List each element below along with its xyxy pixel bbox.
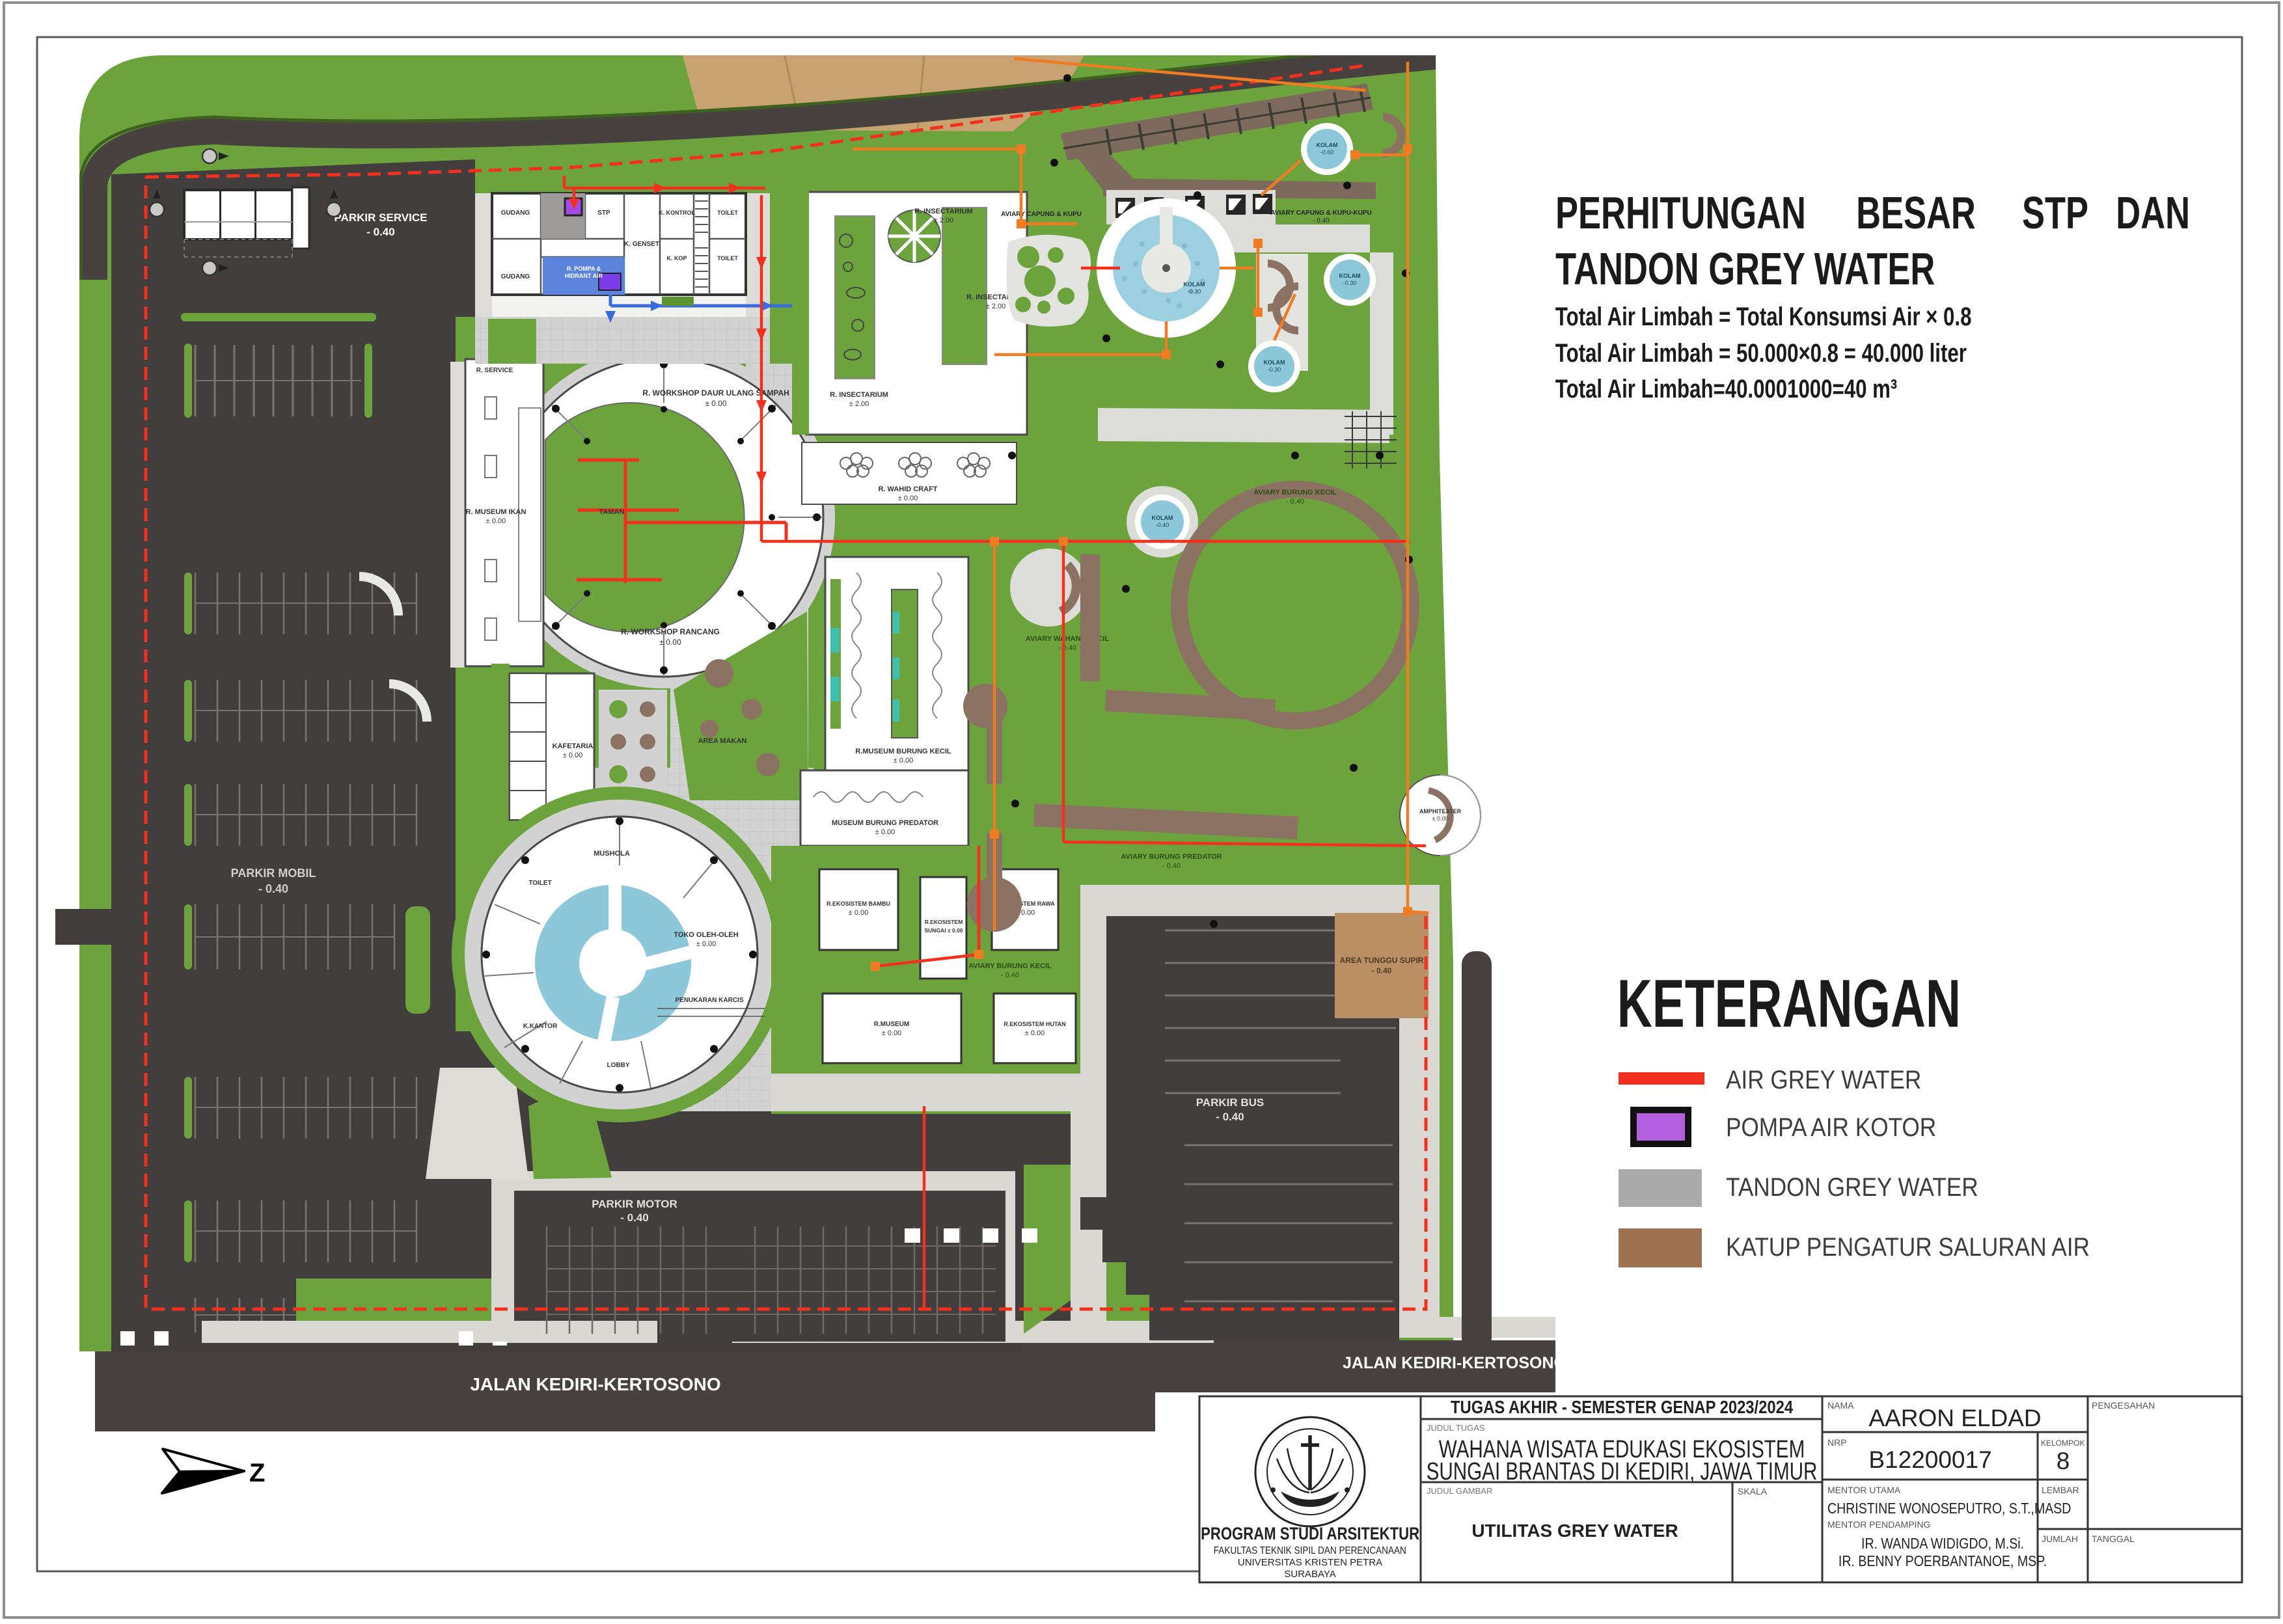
svg-text:AVIARY CAPUNG & KUPU-KUPU: AVIARY CAPUNG & KUPU-KUPU [1270,210,1371,217]
svg-text:R.MUSEUM: R.MUSEUM [874,1021,909,1028]
svg-text:TANDON GREY WATER: TANDON GREY WATER [1726,1172,1978,1202]
svg-text:MENTOR PENDAMPING: MENTOR PENDAMPING [1827,1519,1930,1530]
svg-text:TUGAS AKHIR - SEMESTER GENAP 2: TUGAS AKHIR - SEMESTER GENAP 2023/2024 [1451,1396,1794,1417]
svg-text:SKALA: SKALA [1738,1486,1768,1496]
svg-text:PARKIR BUS: PARKIR BUS [1196,1096,1265,1109]
svg-text:R.MUSEUM BURUNG KECIL: R.MUSEUM BURUNG KECIL [855,748,951,755]
svg-text:AREA TUNGGU SUPIR: AREA TUNGGU SUPIR [1340,956,1424,965]
svg-text:± 0.00: ± 0.00 [659,638,681,647]
svg-text:UNIVERSITAS KRISTEN PETRA: UNIVERSITAS KRISTEN PETRA [1238,1557,1382,1568]
svg-text:NAMA: NAMA [1827,1400,1854,1411]
svg-text:AVIARY CAPUNG & KUPU: AVIARY CAPUNG & KUPU [1001,211,1082,218]
svg-text:TAMAN: TAMAN [599,508,625,516]
svg-text:± 0.00: ± 0.00 [849,909,869,917]
svg-text:-0.40: -0.40 [1156,522,1169,528]
svg-text:± 2.00: ± 2.00 [849,400,869,408]
svg-text:- 0.40: - 0.40 [620,1211,648,1224]
svg-text:- 0.40: - 0.40 [258,882,288,895]
svg-text:± 0.00: ± 0.00 [486,517,506,525]
svg-text:GUDANG: GUDANG [501,210,530,217]
svg-text:- 0.40: - 0.40 [1286,498,1304,506]
svg-text:JUDUL GAMBAR: JUDUL GAMBAR [1427,1486,1492,1496]
svg-text:PENGESAHAN: PENGESAHAN [2092,1400,2155,1411]
svg-text:± 0.00: ± 0.00 [882,1029,902,1037]
svg-text:- 0.40: - 0.40 [1313,217,1330,224]
svg-text:Z: Z [249,1459,265,1487]
svg-text:STP: STP [2022,188,2088,239]
svg-text:PARKIR SERVICE: PARKIR SERVICE [335,211,428,224]
svg-text:AVIARY BURUNG KECIL: AVIARY BURUNG KECIL [1253,489,1337,496]
svg-text:B12200017: B12200017 [1868,1446,1991,1473]
svg-text:BESAR: BESAR [1856,188,1976,239]
svg-text:R.EKOSISTEM BAMBU: R.EKOSISTEM BAMBU [827,900,890,907]
svg-text:KETERANGAN: KETERANGAN [1617,966,1961,1042]
svg-text:SURABAYA: SURABAYA [1284,1569,1335,1580]
svg-text:UTILITAS GREY WATER: UTILITAS GREY WATER [1471,1521,1678,1541]
svg-text:AVIARY BURUNG PREDATOR: AVIARY BURUNG PREDATOR [1121,853,1222,861]
svg-text:R. INSECTARIUM: R. INSECTARIUM [830,391,888,399]
svg-text:HIDRANT AIR: HIDRANT AIR [565,273,603,279]
svg-text:Total Air Limbah=40.0001000=40: Total Air Limbah=40.0001000=40 m³ [1555,374,1897,403]
svg-text:IR. BENNY POERBANTANOE, MSP.: IR. BENNY POERBANTANOE, MSP. [1839,1553,2047,1570]
svg-text:KOLAM: KOLAM [1152,515,1173,521]
svg-text:PERHITUNGAN: PERHITUNGAN [1555,188,1806,239]
svg-text:± 0.00: ± 0.00 [894,757,914,765]
svg-text:DAN: DAN [2116,188,2190,239]
svg-text:± 0.00: ± 0.00 [898,494,918,502]
svg-text:JUMLAH: JUMLAH [2042,1534,2078,1544]
svg-text:K. GENSET: K. GENSET [624,241,659,248]
svg-text:TOKO OLEH-OLEH: TOKO OLEH-OLEH [674,931,738,939]
svg-text:JALAN KEDIRI-KERTOSONO: JALAN KEDIRI-KERTOSONO [1343,1354,1566,1372]
svg-text:R.EKOSISTEM: R.EKOSISTEM [925,919,963,925]
svg-text:AIR GREY WATER: AIR GREY WATER [1726,1065,1921,1094]
svg-text:MUSEUM BURUNG PREDATOR: MUSEUM BURUNG PREDATOR [832,819,938,827]
svg-text:- 0.40: - 0.40 [1162,862,1181,870]
svg-text:KOLAM: KOLAM [1317,142,1338,148]
svg-text:-0.60: -0.60 [1320,149,1334,156]
svg-text:± 0.00: ± 0.00 [1432,815,1449,822]
svg-text:JUDUL TUGAS: JUDUL TUGAS [1427,1423,1485,1433]
svg-text:- 0.40: - 0.40 [1216,1111,1244,1123]
svg-text:± 0.00: ± 0.00 [1025,1029,1045,1037]
svg-text:R. WORKSHOP DAUR ULANG SAMPAH: R. WORKSHOP DAUR ULANG SAMPAH [642,388,789,398]
svg-text:± 2.00: ± 2.00 [934,217,954,224]
svg-text:GUDANG: GUDANG [501,273,530,280]
svg-text:STP: STP [597,210,610,217]
svg-text:± 0.00: ± 0.00 [875,828,895,836]
svg-text:MUSHOLA: MUSHOLA [594,850,630,858]
svg-text:R. POMPA &: R. POMPA & [567,265,601,272]
svg-text:Total Air Limbah = Total Konsu: Total Air Limbah = Total Konsumsi Air × … [1555,302,1972,331]
svg-text:POMPA AIR KOTOR: POMPA AIR KOTOR [1726,1113,1936,1142]
svg-text:K. KOP: K. KOP [666,255,687,262]
svg-text:FAKULTAS TEKNIK SIPIL DAN PERE: FAKULTAS TEKNIK SIPIL DAN PERENCANAAN [1214,1545,1406,1556]
svg-text:-0.30: -0.30 [1188,288,1201,295]
svg-text:R. WORKSHOP RANCANG: R. WORKSHOP RANCANG [621,627,720,636]
svg-text:± 0.00: ± 0.00 [563,751,583,759]
svg-text:KOLAM: KOLAM [1339,273,1361,279]
svg-text:± 2.00: ± 2.00 [986,303,1006,310]
svg-text:KATUP PENGATUR SALURAN AIR: KATUP PENGATUR SALURAN AIR [1726,1232,2090,1262]
svg-text:± 0.00: ± 0.00 [696,940,717,948]
svg-text:JALAN KEDIRI-KERTOSONO: JALAN KEDIRI-KERTOSONO [470,1374,720,1394]
svg-text:TOILET: TOILET [717,210,738,216]
svg-text:R.EKOSISTEM HUTAN: R.EKOSISTEM HUTAN [1004,1021,1065,1027]
svg-text:SUNGAI BRANTAS DI KEDIRI, JAWA: SUNGAI BRANTAS DI KEDIRI, JAWA TIMUR [1427,1458,1818,1485]
svg-text:-0.30: -0.30 [1268,366,1281,373]
svg-text:AARON ELDAD: AARON ELDAD [1868,1405,2041,1431]
svg-text:- 0.40: - 0.40 [1372,966,1392,975]
svg-text:LEMBAR: LEMBAR [2042,1485,2079,1495]
svg-text:TANGGAL: TANGGAL [2092,1534,2135,1544]
svg-text:- 0.40: - 0.40 [1001,971,1019,979]
svg-text:KELOMPOK: KELOMPOK [2041,1439,2085,1448]
svg-text:TOILET: TOILET [717,255,738,262]
svg-text:KAFETARIA: KAFETARIA [553,742,594,750]
svg-text:AREA MAKAN: AREA MAKAN [698,737,747,745]
svg-text:R. SERVICE: R. SERVICE [476,367,513,374]
svg-text:IR. WANDA WIDIGDO, M.Si.: IR. WANDA WIDIGDO, M.Si. [1861,1536,2024,1552]
svg-text:- 0.40: - 0.40 [366,226,394,238]
svg-text:SUNGAI ± 0.00: SUNGAI ± 0.00 [925,927,963,934]
svg-text:AVIARY BURUNG KECIL: AVIARY BURUNG KECIL [968,962,1052,970]
svg-text:-0.30: -0.30 [1343,280,1357,286]
svg-text:TANDON GREY WATER: TANDON GREY WATER [1555,244,1935,295]
svg-text:KOLAM: KOLAM [1264,359,1285,366]
svg-text:- 0.40: - 0.40 [1058,644,1076,652]
svg-text:K.KANTOR: K.KANTOR [523,1023,558,1030]
svg-text:R. INSECTARIUM: R. INSECTARIUM [914,208,973,215]
svg-text:TOILET: TOILET [528,880,551,887]
svg-text:LOBBY: LOBBY [607,1062,630,1069]
svg-text:PARKIR MOTOR: PARKIR MOTOR [592,1198,677,1210]
svg-text:R. WAHID CRAFT: R. WAHID CRAFT [878,485,937,493]
svg-text:KOLAM: KOLAM [1184,281,1205,288]
svg-text:± 0.00: ± 0.00 [705,399,727,408]
svg-text:CHRISTINE WONOSEPUTRO, S.T.,MA: CHRISTINE WONOSEPUTRO, S.T.,MASD [1827,1500,2071,1517]
svg-text:K. KONTROL: K. KONTROL [659,210,695,216]
svg-text:NRP: NRP [1827,1437,1847,1448]
svg-text:PARKIR MOBIL: PARKIR MOBIL [231,867,316,880]
svg-text:AMPHITEATER: AMPHITEATER [1419,808,1462,815]
svg-text:8: 8 [2057,1448,2070,1474]
svg-text:PENUKARAN KARCIS: PENUKARAN KARCIS [675,997,743,1004]
svg-text:R. MUSEUM IKAN: R. MUSEUM IKAN [466,508,526,516]
svg-text:MENTOR UTAMA: MENTOR UTAMA [1827,1485,1901,1495]
svg-text:Total Air Limbah = 50.000×0.8: Total Air Limbah = 50.000×0.8 = 40.000 l… [1555,338,1967,368]
